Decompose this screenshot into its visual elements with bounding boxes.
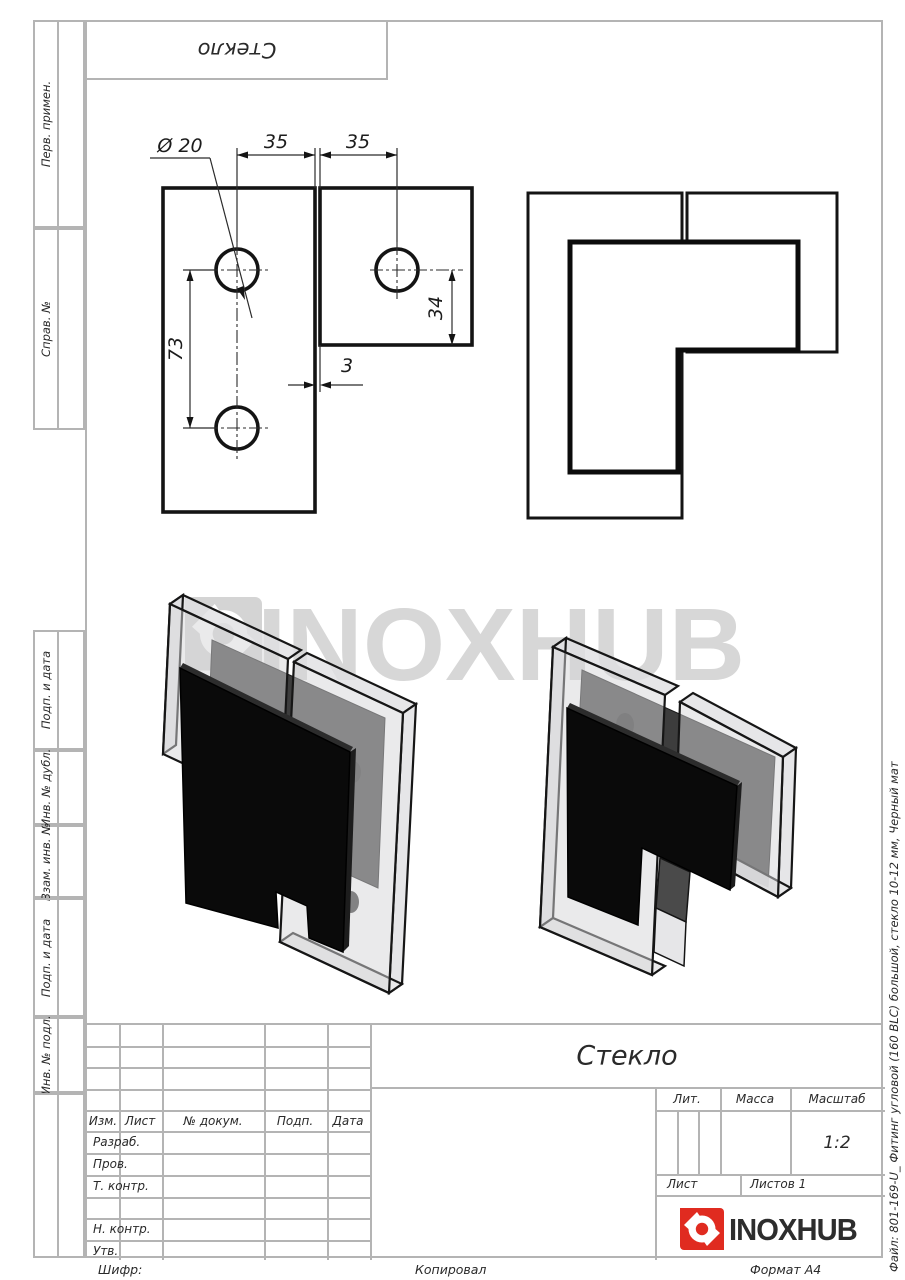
sidebar-label: Справ. № xyxy=(39,301,53,357)
footer-kopiroval: Копировал xyxy=(415,1262,486,1277)
dim-73: 73 xyxy=(165,337,187,361)
sidebar-divider xyxy=(57,900,59,1015)
scale-value: 1:2 xyxy=(823,1133,850,1153)
sidebar-block-empty xyxy=(33,1093,85,1258)
sidebar-label: Подп. и дата xyxy=(39,918,53,996)
sidebar-divider xyxy=(57,1095,59,1256)
row-prov: Пров. xyxy=(93,1157,128,1171)
side-view xyxy=(528,193,837,518)
sidebar-label: Инв. № дубл. xyxy=(39,748,53,827)
footer-format: Формат А4 xyxy=(750,1262,821,1277)
sidebar-label: Взам. инв. № xyxy=(39,822,53,900)
sidebar-block-podp-data-2: Подп. и дата xyxy=(33,898,85,1017)
sidebar-block-sprav: Справ. № xyxy=(33,228,85,430)
sidebar-label: Инв. № подл. xyxy=(39,1015,53,1094)
part-title: Стекло xyxy=(576,1041,677,1072)
col-podp: Подп. xyxy=(277,1114,313,1128)
inoxhub-logo-icon xyxy=(680,1208,724,1250)
col-list: Лист xyxy=(125,1114,155,1128)
file-note: Файл: 801-169-U_ Фитинг угловой (160 BLC… xyxy=(887,858,901,1272)
sidebar-block-podp-data-1: Подп. и дата xyxy=(33,630,85,750)
dim-diameter: Ø 20 xyxy=(156,135,202,157)
inoxhub-logo-text: INOXHUB xyxy=(729,1212,857,1248)
sidebar-block-inv-podl: Инв. № подл. xyxy=(33,1017,85,1093)
front-right-plate xyxy=(320,188,472,345)
masshtab-header: Масштаб xyxy=(808,1092,865,1106)
sidebar-block-inv-dubl: Инв. № дубл. xyxy=(33,750,85,825)
sidebar-divider xyxy=(57,752,59,823)
col-izm: Изм. xyxy=(89,1114,117,1128)
list-label: Лист xyxy=(667,1177,697,1191)
sidebar-label: Подп. и дата xyxy=(39,651,53,729)
title-block: Изм. Лист № докум. Подп. Дата Разраб. Пр… xyxy=(85,1023,883,1258)
row-utv: Утв. xyxy=(93,1244,118,1258)
sidebar-divider xyxy=(57,1019,59,1091)
sidebar-divider xyxy=(57,22,59,226)
sidebar-divider xyxy=(57,230,59,428)
sidebar-divider xyxy=(57,632,59,748)
drawing-canvas: INOXHUB xyxy=(85,20,883,1025)
dim-34: 34 xyxy=(425,296,447,320)
dim-35-left: 35 xyxy=(264,131,288,153)
listov-label: Листов 1 xyxy=(750,1177,806,1191)
row-t-kontr: Т. контр. xyxy=(93,1179,149,1193)
sidebar-block-vzam-inv: Взам. инв. № xyxy=(33,825,85,898)
footer-shifr: Шифр: xyxy=(98,1262,142,1277)
lit-header: Лит. xyxy=(673,1092,701,1106)
front-view: Ø 20 35 35 73 34 3 xyxy=(150,131,472,512)
sidebar-divider xyxy=(57,827,59,896)
row-razrab: Разраб. xyxy=(93,1135,140,1149)
sidebar-label: Перв. примен. xyxy=(39,81,53,167)
sidebar-block-perv-primen: Перв. примен. xyxy=(33,20,85,228)
dim-gap-3: 3 xyxy=(341,355,353,377)
side-fitting-outline xyxy=(570,242,798,472)
drawing-sheet: Стекло Перв. примен. Справ. № Подп. и да… xyxy=(0,0,905,1280)
col-num-dokum: № докум. xyxy=(183,1114,242,1128)
massa-header: Масса xyxy=(736,1092,774,1106)
dim-35-right: 35 xyxy=(346,131,370,153)
centerlines xyxy=(205,242,463,460)
iso-view-right xyxy=(540,638,796,975)
row-n-kontr: Н. контр. xyxy=(93,1222,151,1236)
col-data: Дата xyxy=(332,1114,363,1128)
